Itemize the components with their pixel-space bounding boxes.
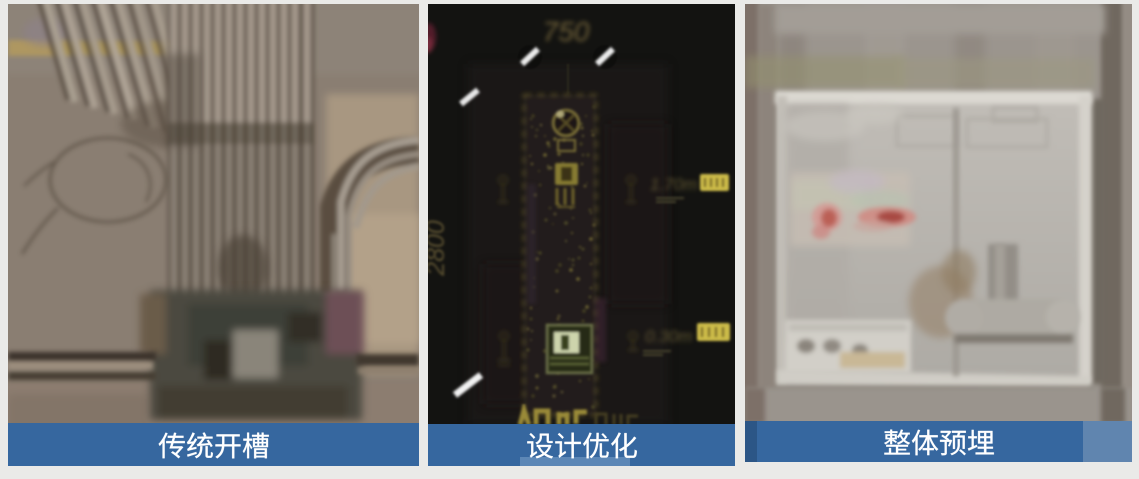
svg-text:1.70m: 1.70m [650,175,697,194]
svg-text:750: 750 [543,16,590,47]
svg-text:0.30m: 0.30m [645,327,692,346]
svg-text:2800: 2800 [428,220,450,277]
